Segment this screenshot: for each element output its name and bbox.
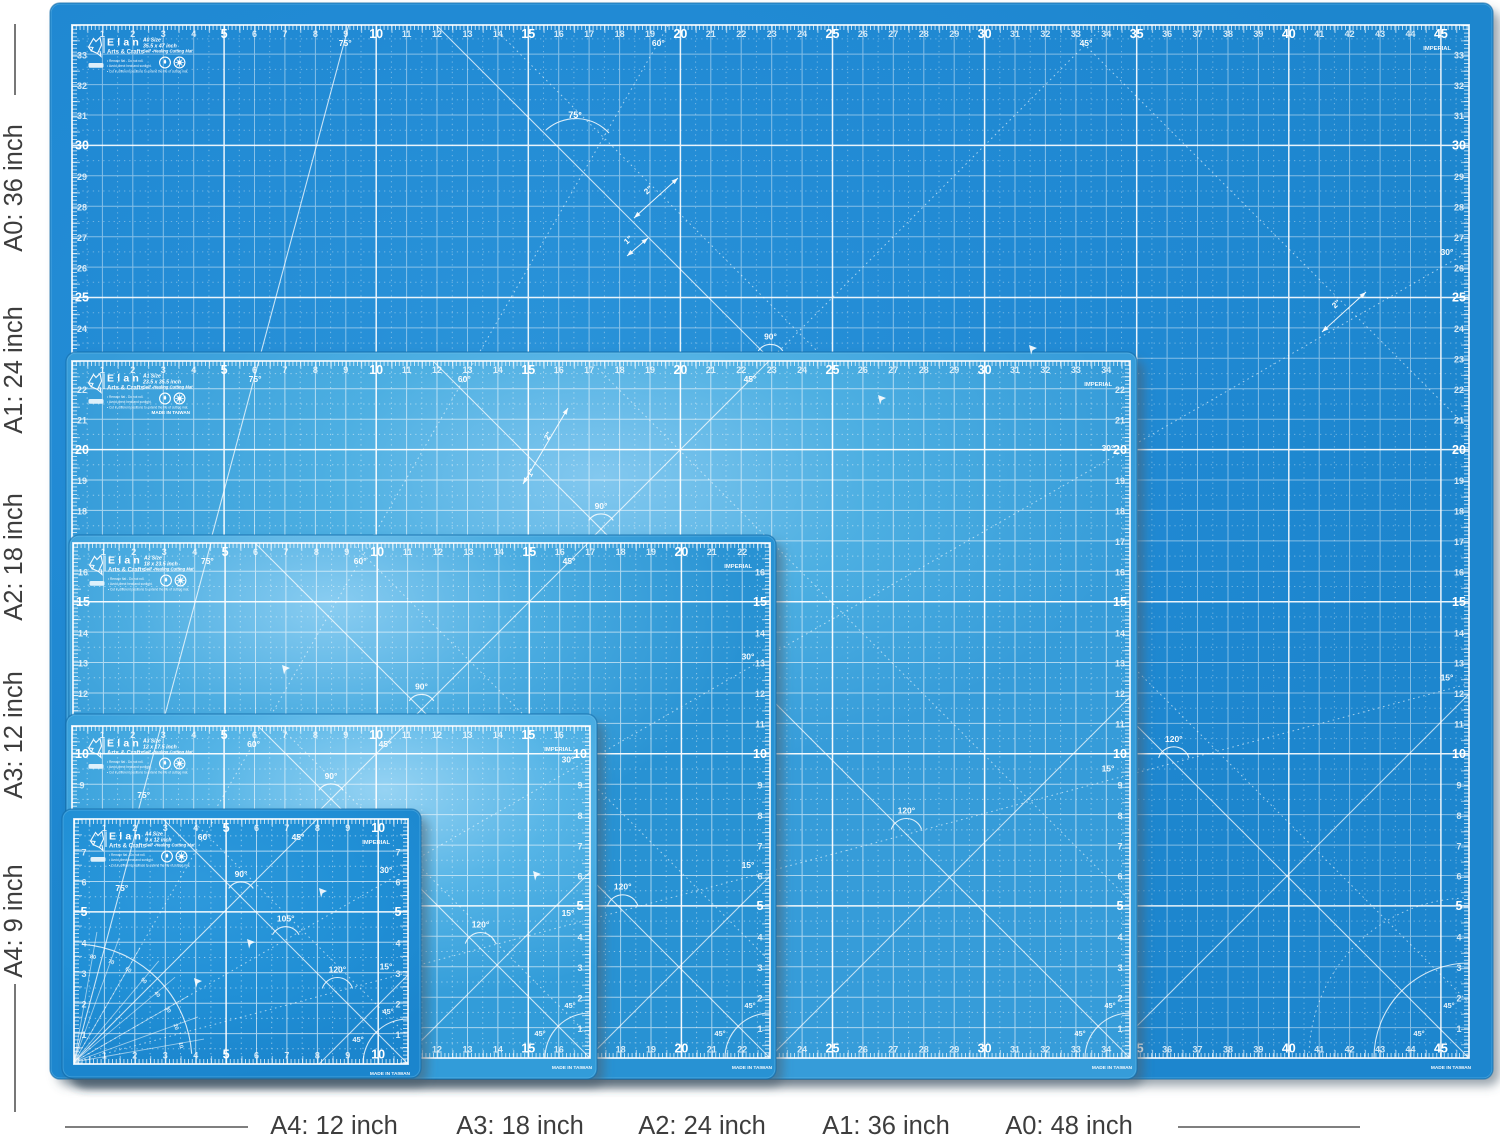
svg-text:24: 24 bbox=[77, 324, 87, 334]
svg-text:19: 19 bbox=[77, 476, 87, 486]
svg-text:16: 16 bbox=[554, 365, 564, 375]
svg-text:9: 9 bbox=[345, 823, 350, 833]
svg-text:12: 12 bbox=[433, 547, 443, 557]
svg-text:30: 30 bbox=[978, 1042, 992, 1056]
svg-text:27: 27 bbox=[888, 29, 898, 39]
svg-text:14: 14 bbox=[494, 547, 504, 557]
svg-text:28: 28 bbox=[919, 29, 929, 39]
svg-text:45°: 45° bbox=[292, 832, 305, 842]
svg-text:21: 21 bbox=[1454, 415, 1464, 425]
svg-text:35: 35 bbox=[1130, 27, 1144, 41]
svg-text:10: 10 bbox=[370, 545, 384, 559]
svg-text:5: 5 bbox=[81, 905, 88, 919]
svg-text:3: 3 bbox=[1117, 963, 1122, 973]
svg-text:11: 11 bbox=[402, 730, 412, 740]
svg-text:1: 1 bbox=[577, 1024, 582, 1034]
svg-text:13: 13 bbox=[462, 1045, 472, 1055]
svg-text:1: 1 bbox=[395, 1030, 400, 1040]
svg-text:6: 6 bbox=[1117, 872, 1122, 882]
svg-text:MADE IN TAIWAN: MADE IN TAIWAN bbox=[552, 1065, 593, 1071]
svg-text:45°: 45° bbox=[1080, 38, 1093, 48]
svg-text:90°: 90° bbox=[325, 771, 338, 781]
svg-text:10: 10 bbox=[371, 1048, 385, 1062]
svg-text:Elan: Elan bbox=[109, 831, 144, 843]
svg-text:45°: 45° bbox=[744, 1001, 755, 1010]
svg-text:A4: 12 inch: A4: 12 inch bbox=[270, 1112, 398, 1140]
svg-text:20: 20 bbox=[1452, 443, 1466, 457]
svg-text:7: 7 bbox=[282, 29, 287, 39]
svg-text:5: 5 bbox=[223, 1048, 230, 1062]
svg-text:6: 6 bbox=[254, 1051, 259, 1061]
svg-text:8: 8 bbox=[313, 365, 318, 375]
svg-text:• Avoid direct heat and sunlig: • Avoid direct heat and sunlight. bbox=[107, 400, 152, 404]
svg-text:43: 43 bbox=[1375, 1045, 1385, 1055]
svg-text:8: 8 bbox=[1456, 811, 1461, 821]
svg-text:39: 39 bbox=[1253, 29, 1263, 39]
svg-text:15: 15 bbox=[521, 363, 535, 377]
svg-text:9: 9 bbox=[343, 365, 348, 375]
svg-text:19: 19 bbox=[645, 29, 655, 39]
svg-text:18: 18 bbox=[1454, 507, 1464, 517]
svg-text:31: 31 bbox=[1010, 1045, 1020, 1055]
svg-text:13: 13 bbox=[755, 659, 765, 669]
svg-text:Elan: Elan bbox=[107, 37, 142, 49]
svg-text:90°: 90° bbox=[235, 869, 248, 879]
svg-text:A2: 18 inch: A2: 18 inch bbox=[0, 493, 28, 621]
svg-text:41: 41 bbox=[1314, 1045, 1324, 1055]
svg-text:10: 10 bbox=[573, 747, 587, 761]
svg-text:75°: 75° bbox=[137, 790, 150, 800]
svg-text:33: 33 bbox=[77, 50, 87, 60]
svg-text:120°: 120° bbox=[472, 920, 490, 930]
svg-text:2: 2 bbox=[395, 999, 400, 1009]
svg-text:41: 41 bbox=[1314, 29, 1324, 39]
svg-text:39: 39 bbox=[1253, 1045, 1263, 1055]
svg-text:7: 7 bbox=[577, 841, 582, 851]
svg-text:60°: 60° bbox=[198, 832, 211, 842]
svg-text:7: 7 bbox=[81, 847, 86, 857]
svg-text:7: 7 bbox=[284, 823, 289, 833]
svg-text:19: 19 bbox=[1115, 476, 1125, 486]
svg-text:33: 33 bbox=[1454, 50, 1464, 60]
svg-text:Self -Healing Cutting Mat: Self -Healing Cutting Mat bbox=[143, 385, 193, 390]
svg-text:14: 14 bbox=[493, 365, 503, 375]
svg-text:45°: 45° bbox=[744, 374, 757, 384]
svg-text:14: 14 bbox=[1454, 628, 1464, 638]
svg-text:44: 44 bbox=[1405, 1045, 1415, 1055]
svg-text:15°: 15° bbox=[1441, 673, 1454, 683]
svg-text:75°: 75° bbox=[201, 556, 214, 566]
svg-text:5: 5 bbox=[757, 899, 764, 913]
svg-text:21: 21 bbox=[1115, 415, 1125, 425]
svg-text:15: 15 bbox=[1113, 595, 1127, 609]
svg-text:11: 11 bbox=[402, 365, 412, 375]
svg-text:14: 14 bbox=[755, 628, 765, 638]
svg-text:7: 7 bbox=[1117, 841, 1122, 851]
svg-text:45°: 45° bbox=[1413, 1029, 1424, 1038]
svg-text:25: 25 bbox=[1452, 291, 1466, 305]
svg-text:IMPERIAL: IMPERIAL bbox=[1423, 46, 1451, 52]
svg-text:4: 4 bbox=[1456, 933, 1461, 943]
svg-text:1: 1 bbox=[757, 1024, 762, 1034]
svg-text:44: 44 bbox=[1405, 29, 1415, 39]
svg-text:25: 25 bbox=[826, 363, 840, 377]
svg-text:6: 6 bbox=[252, 365, 257, 375]
svg-text:9: 9 bbox=[343, 29, 348, 39]
svg-text:6: 6 bbox=[1456, 872, 1461, 882]
svg-text:45°: 45° bbox=[382, 1007, 393, 1016]
svg-text:6: 6 bbox=[254, 823, 259, 833]
svg-text:22: 22 bbox=[1454, 385, 1464, 395]
svg-text:• Remain flat - Do not roll.: • Remain flat - Do not roll. bbox=[107, 760, 143, 764]
svg-text:12: 12 bbox=[755, 689, 765, 699]
svg-text:6: 6 bbox=[81, 878, 86, 888]
svg-text:8: 8 bbox=[757, 811, 762, 821]
svg-text:34: 34 bbox=[1101, 365, 1111, 375]
svg-text:16: 16 bbox=[555, 547, 565, 557]
svg-text:7: 7 bbox=[284, 1051, 289, 1061]
svg-text:MADE IN TAIWAN: MADE IN TAIWAN bbox=[1431, 1065, 1472, 1071]
svg-text:9: 9 bbox=[79, 780, 84, 790]
svg-text:16: 16 bbox=[78, 568, 88, 578]
svg-text:A0: 48 inch: A0: 48 inch bbox=[1005, 1112, 1133, 1140]
svg-text:5: 5 bbox=[577, 899, 584, 913]
svg-text:90°: 90° bbox=[415, 682, 428, 692]
svg-text:28: 28 bbox=[919, 1045, 929, 1055]
svg-text:22: 22 bbox=[737, 1045, 747, 1055]
svg-text:26: 26 bbox=[858, 1045, 868, 1055]
svg-text:45°: 45° bbox=[714, 1029, 725, 1038]
svg-text:6: 6 bbox=[253, 547, 258, 557]
svg-text:3: 3 bbox=[1456, 963, 1461, 973]
svg-text:A1: 24 inch: A1: 24 inch bbox=[0, 306, 28, 434]
svg-text:6: 6 bbox=[252, 29, 257, 39]
svg-text:38: 38 bbox=[1223, 29, 1233, 39]
svg-text:Self -Healing Cutting Mat: Self -Healing Cutting Mat bbox=[145, 843, 195, 848]
svg-text:8: 8 bbox=[1117, 811, 1122, 821]
svg-text:24: 24 bbox=[797, 1045, 807, 1055]
svg-text:10: 10 bbox=[753, 747, 767, 761]
svg-text:4: 4 bbox=[1117, 933, 1122, 943]
svg-text:23: 23 bbox=[767, 29, 777, 39]
svg-text:3: 3 bbox=[81, 969, 86, 979]
svg-text:12: 12 bbox=[432, 730, 442, 740]
svg-text:105°: 105° bbox=[277, 914, 295, 924]
svg-text:10: 10 bbox=[369, 728, 383, 742]
svg-text:• Cut in different positions t: • Cut in different positions to extend t… bbox=[108, 587, 189, 591]
svg-text:MADE IN TAIWAN: MADE IN TAIWAN bbox=[152, 410, 191, 415]
svg-text:19: 19 bbox=[646, 547, 656, 557]
svg-text:Arts & Crafts: Arts & Crafts bbox=[107, 386, 145, 392]
svg-text:10: 10 bbox=[1113, 747, 1127, 761]
svg-text:9: 9 bbox=[757, 780, 762, 790]
svg-text:3: 3 bbox=[163, 1051, 168, 1061]
svg-text:42: 42 bbox=[1345, 29, 1355, 39]
svg-text:22: 22 bbox=[737, 547, 747, 557]
svg-text:3: 3 bbox=[577, 963, 582, 973]
svg-text:• Remain flat - Do not roll.: • Remain flat - Do not roll. bbox=[107, 59, 143, 63]
svg-text:45°: 45° bbox=[352, 1035, 363, 1044]
svg-text:8: 8 bbox=[577, 811, 582, 821]
svg-text:12: 12 bbox=[78, 689, 88, 699]
svg-text:• Avoid direct heat and sunlig: • Avoid direct heat and sunlight. bbox=[107, 64, 152, 68]
svg-text:24: 24 bbox=[797, 365, 807, 375]
svg-text:9: 9 bbox=[1456, 780, 1461, 790]
svg-text:75°: 75° bbox=[115, 883, 128, 893]
svg-text:13: 13 bbox=[1115, 659, 1125, 669]
svg-text:22: 22 bbox=[736, 365, 746, 375]
svg-text:30: 30 bbox=[75, 139, 89, 153]
svg-text:10: 10 bbox=[371, 821, 385, 835]
svg-text:60°: 60° bbox=[354, 556, 367, 566]
svg-text:36: 36 bbox=[1162, 29, 1172, 39]
svg-text:• Cut in different positions t: • Cut in different positions to extend t… bbox=[107, 770, 188, 774]
svg-text:A4: 9 inch: A4: 9 inch bbox=[0, 864, 28, 977]
svg-text:20: 20 bbox=[75, 443, 89, 457]
svg-text:6: 6 bbox=[577, 872, 582, 882]
svg-text:• Remain flat - Do not roll.: • Remain flat - Do not roll. bbox=[109, 853, 145, 857]
svg-text:Arts & Crafts: Arts & Crafts bbox=[107, 50, 145, 56]
svg-text:120°: 120° bbox=[614, 882, 632, 892]
svg-text:15: 15 bbox=[753, 595, 767, 609]
svg-text:40: 40 bbox=[1282, 27, 1296, 41]
svg-text:1: 1 bbox=[1456, 1024, 1461, 1034]
svg-text:19: 19 bbox=[646, 1045, 656, 1055]
svg-text:18: 18 bbox=[616, 547, 626, 557]
svg-text:Self -Healing Cutting Mat: Self -Healing Cutting Mat bbox=[144, 567, 194, 572]
svg-text:11: 11 bbox=[403, 547, 413, 557]
svg-text:60°: 60° bbox=[652, 38, 665, 48]
svg-text:19: 19 bbox=[645, 365, 655, 375]
svg-text:31: 31 bbox=[1010, 29, 1020, 39]
svg-text:9: 9 bbox=[343, 730, 348, 740]
svg-text:9: 9 bbox=[344, 547, 349, 557]
svg-text:3: 3 bbox=[395, 969, 400, 979]
svg-text:5: 5 bbox=[221, 363, 228, 377]
svg-text:16: 16 bbox=[554, 730, 564, 740]
svg-text:8: 8 bbox=[313, 29, 318, 39]
svg-text:17: 17 bbox=[584, 29, 594, 39]
svg-text:12: 12 bbox=[432, 1045, 442, 1055]
svg-text:14: 14 bbox=[78, 628, 88, 638]
svg-text:13: 13 bbox=[462, 29, 472, 39]
svg-text:Self -Healing Cutting Mat: Self -Healing Cutting Mat bbox=[143, 49, 193, 54]
svg-text:11: 11 bbox=[1454, 720, 1464, 730]
svg-text:20: 20 bbox=[674, 545, 688, 559]
svg-text:17: 17 bbox=[1454, 537, 1464, 547]
svg-text:2: 2 bbox=[1117, 993, 1122, 1003]
svg-text:4: 4 bbox=[191, 365, 196, 375]
svg-text:10: 10 bbox=[177, 1042, 184, 1049]
svg-text:30°: 30° bbox=[380, 865, 393, 875]
svg-text:22: 22 bbox=[736, 29, 746, 39]
svg-text:60°: 60° bbox=[247, 739, 260, 749]
svg-text:13: 13 bbox=[463, 547, 473, 557]
svg-text:45°: 45° bbox=[563, 556, 576, 566]
svg-text:MADE IN TAIWAN: MADE IN TAIWAN bbox=[732, 1065, 773, 1071]
svg-text:75°: 75° bbox=[568, 110, 582, 120]
svg-text:31: 31 bbox=[1010, 365, 1020, 375]
svg-text:5: 5 bbox=[1456, 899, 1463, 913]
svg-text:4: 4 bbox=[577, 933, 582, 943]
svg-text:17: 17 bbox=[1115, 537, 1125, 547]
svg-text:27: 27 bbox=[77, 233, 87, 243]
svg-text:21: 21 bbox=[706, 29, 716, 39]
svg-text:16: 16 bbox=[554, 1045, 564, 1055]
svg-text:29: 29 bbox=[949, 365, 959, 375]
svg-text:8: 8 bbox=[314, 547, 319, 557]
svg-text:26: 26 bbox=[858, 29, 868, 39]
svg-text:23: 23 bbox=[767, 365, 777, 375]
svg-text:33: 33 bbox=[1071, 1045, 1081, 1055]
svg-text:6: 6 bbox=[757, 872, 762, 882]
svg-text:2: 2 bbox=[577, 993, 582, 1003]
svg-text:30°: 30° bbox=[1441, 247, 1454, 257]
svg-text:11: 11 bbox=[1115, 720, 1125, 730]
svg-text:14: 14 bbox=[493, 730, 503, 740]
svg-text:45°: 45° bbox=[534, 1029, 545, 1038]
svg-text:4: 4 bbox=[757, 933, 762, 943]
svg-text:15: 15 bbox=[521, 27, 535, 41]
svg-text:9: 9 bbox=[345, 1051, 350, 1061]
svg-text:37: 37 bbox=[1192, 29, 1202, 39]
svg-text:7: 7 bbox=[1456, 841, 1461, 851]
svg-text:45: 45 bbox=[1434, 27, 1448, 41]
svg-text:75°: 75° bbox=[339, 38, 352, 48]
svg-text:12: 12 bbox=[1454, 689, 1464, 699]
svg-text:29: 29 bbox=[77, 172, 87, 182]
svg-text:IMPERIAL: IMPERIAL bbox=[362, 840, 390, 846]
svg-text:• Cut in different positions t: • Cut in different positions to extend t… bbox=[109, 863, 190, 867]
svg-text:Elan: Elan bbox=[107, 373, 142, 385]
svg-text:10: 10 bbox=[1452, 747, 1466, 761]
svg-text:90°: 90° bbox=[764, 332, 777, 342]
svg-text:120°: 120° bbox=[1165, 734, 1183, 744]
svg-text:17: 17 bbox=[585, 547, 595, 557]
svg-text:22: 22 bbox=[1115, 385, 1125, 395]
svg-text:Self -Healing Cutting Mat: Self -Healing Cutting Mat bbox=[143, 750, 193, 755]
svg-text:30°: 30° bbox=[742, 651, 755, 661]
svg-text:30: 30 bbox=[1452, 139, 1466, 153]
svg-text:7: 7 bbox=[282, 365, 287, 375]
svg-text:27: 27 bbox=[888, 365, 898, 375]
svg-text:IMPERIAL: IMPERIAL bbox=[544, 747, 572, 753]
svg-text:16: 16 bbox=[554, 29, 564, 39]
svg-text:• Remain flat - Do not roll.: • Remain flat - Do not roll. bbox=[108, 577, 144, 581]
svg-text:10: 10 bbox=[369, 363, 383, 377]
svg-text:2: 2 bbox=[1456, 993, 1461, 1003]
svg-text:14: 14 bbox=[493, 1045, 503, 1055]
svg-text:4: 4 bbox=[395, 939, 400, 949]
svg-text:18: 18 bbox=[616, 1045, 626, 1055]
svg-text:IMPERIAL: IMPERIAL bbox=[724, 564, 752, 570]
svg-text:11: 11 bbox=[402, 29, 412, 39]
svg-text:16: 16 bbox=[755, 568, 765, 578]
svg-text:• Cut in different positions t: • Cut in different positions to extend t… bbox=[107, 405, 188, 409]
svg-text:14: 14 bbox=[1115, 628, 1125, 638]
svg-text:23: 23 bbox=[1454, 355, 1464, 365]
svg-text:12: 12 bbox=[432, 365, 442, 375]
svg-text:40: 40 bbox=[1282, 1042, 1296, 1056]
svg-text:4: 4 bbox=[191, 730, 196, 740]
svg-text:45°: 45° bbox=[1104, 1001, 1115, 1010]
svg-text:5: 5 bbox=[395, 905, 402, 919]
svg-text:16: 16 bbox=[1454, 568, 1464, 578]
svg-text:43: 43 bbox=[1375, 29, 1385, 39]
svg-text:29: 29 bbox=[1454, 172, 1464, 182]
svg-text:32: 32 bbox=[1040, 1045, 1050, 1055]
svg-text:30: 30 bbox=[978, 27, 992, 41]
svg-text:5: 5 bbox=[1117, 899, 1124, 913]
svg-text:• Avoid direct heat and sunlig: • Avoid direct heat and sunlight. bbox=[109, 858, 154, 862]
svg-text:Elan: Elan bbox=[107, 738, 142, 750]
svg-text:29: 29 bbox=[949, 1045, 959, 1055]
svg-text:15: 15 bbox=[521, 1042, 535, 1056]
svg-text:120°: 120° bbox=[898, 805, 916, 815]
svg-text:5: 5 bbox=[221, 728, 228, 742]
svg-text:6: 6 bbox=[252, 730, 257, 740]
svg-text:• Avoid direct heat and sunlig: • Avoid direct heat and sunlight. bbox=[108, 582, 153, 586]
svg-text:21: 21 bbox=[77, 415, 87, 425]
svg-text:26: 26 bbox=[77, 263, 87, 273]
svg-text:24: 24 bbox=[797, 29, 807, 39]
svg-text:11: 11 bbox=[755, 720, 765, 730]
svg-text:21: 21 bbox=[706, 365, 716, 375]
svg-text:28: 28 bbox=[77, 202, 87, 212]
svg-text:37: 37 bbox=[1192, 1045, 1202, 1055]
svg-text:26: 26 bbox=[1454, 263, 1464, 273]
svg-text:4: 4 bbox=[193, 1051, 198, 1061]
svg-text:A3: 12 inch: A3: 12 inch bbox=[0, 671, 28, 799]
svg-text:75°: 75° bbox=[249, 374, 262, 384]
svg-text:31: 31 bbox=[77, 111, 87, 121]
svg-text:26: 26 bbox=[858, 365, 868, 375]
svg-text:13: 13 bbox=[1454, 659, 1464, 669]
svg-text:45: 45 bbox=[1434, 1042, 1448, 1056]
svg-text:7: 7 bbox=[757, 841, 762, 851]
svg-text:20: 20 bbox=[673, 363, 687, 377]
svg-text:28: 28 bbox=[1454, 202, 1464, 212]
svg-text:80: 80 bbox=[89, 954, 96, 961]
svg-text:90°: 90° bbox=[595, 501, 608, 511]
svg-text:60°: 60° bbox=[458, 374, 471, 384]
svg-text:A1: 36 inch: A1: 36 inch bbox=[822, 1112, 950, 1140]
svg-text:15°: 15° bbox=[380, 961, 393, 971]
svg-text:32: 32 bbox=[1454, 81, 1464, 91]
svg-text:MADE IN TAIWAN: MADE IN TAIWAN bbox=[370, 1071, 411, 1077]
svg-text:3: 3 bbox=[757, 963, 762, 973]
svg-text:7: 7 bbox=[395, 847, 400, 857]
svg-text:• Remain flat - Do not roll.: • Remain flat - Do not roll. bbox=[107, 395, 143, 399]
svg-text:20: 20 bbox=[674, 1042, 688, 1056]
svg-text:13: 13 bbox=[462, 365, 472, 375]
svg-text:4: 4 bbox=[81, 939, 86, 949]
svg-text:• Cut in different positions t: • Cut in different positions to extend t… bbox=[107, 69, 188, 73]
svg-text:33: 33 bbox=[1071, 29, 1081, 39]
svg-text:5: 5 bbox=[222, 545, 229, 559]
svg-text:9: 9 bbox=[1117, 780, 1122, 790]
svg-text:25: 25 bbox=[826, 27, 840, 41]
svg-text:45°: 45° bbox=[1074, 1029, 1085, 1038]
svg-text:2: 2 bbox=[757, 993, 762, 1003]
svg-text:38: 38 bbox=[1223, 1045, 1233, 1055]
svg-text:7: 7 bbox=[282, 730, 287, 740]
svg-text:16: 16 bbox=[1115, 568, 1125, 578]
svg-text:31: 31 bbox=[1454, 111, 1464, 121]
svg-text:32: 32 bbox=[1040, 365, 1050, 375]
svg-text:8: 8 bbox=[313, 730, 318, 740]
svg-text:29: 29 bbox=[949, 29, 959, 39]
